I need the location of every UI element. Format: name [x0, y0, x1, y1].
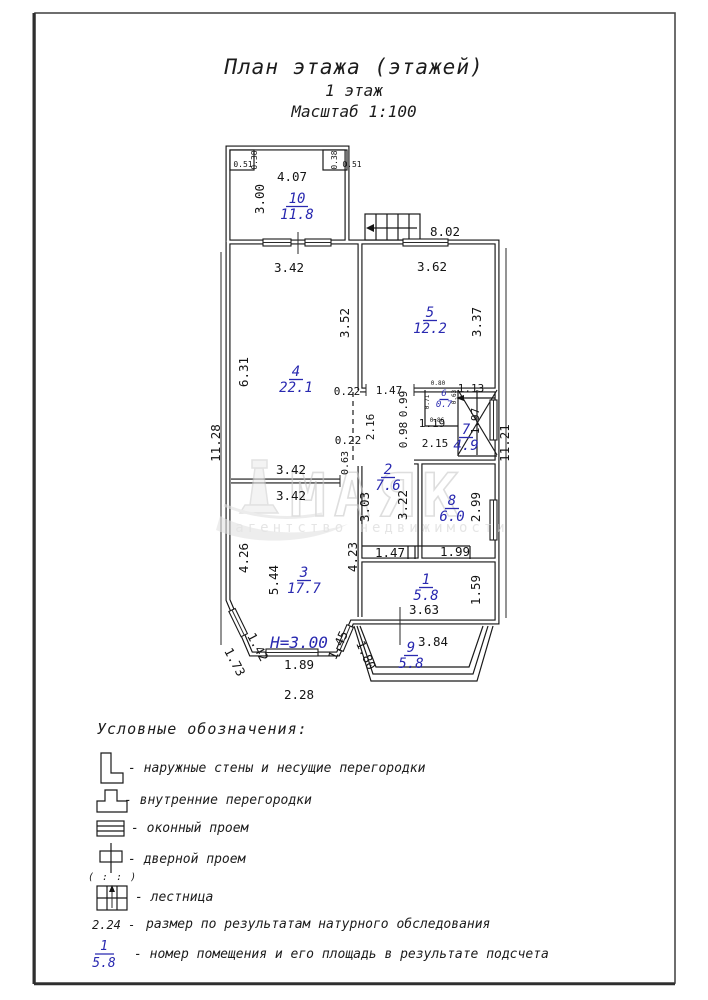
- dim-label: 4.07: [277, 169, 307, 184]
- room-area: 22.1: [279, 380, 313, 396]
- room-number: 7: [462, 422, 471, 438]
- floor-plan-drawing: План этажа (этажей) 1 этаж Масштаб 1:100: [0, 0, 708, 1000]
- room-number: 10: [289, 191, 306, 207]
- dim-label: 0.86: [430, 417, 445, 424]
- legend-item-label: - наружные стены и несущие перегородки: [128, 761, 426, 776]
- room-area: 11.8: [280, 207, 314, 223]
- dim-label: 3.52: [337, 308, 352, 338]
- dim-label: 1.97: [469, 408, 482, 435]
- legend-item-label: - лестница: [135, 890, 213, 905]
- size-key-label: размер по результатам натурного обследов…: [145, 917, 490, 932]
- dim-label: 0.38: [330, 150, 339, 169]
- dim-label: 1.47: [375, 545, 405, 560]
- legend-heading: Условные обозначения:: [97, 720, 308, 738]
- dim-label: 2.99: [468, 492, 483, 522]
- legend-item-label: - внутренние перегородки: [124, 793, 312, 808]
- room-area: 6.0: [439, 509, 464, 525]
- dim-label: 3.42: [274, 260, 304, 275]
- dim-label: 5.44: [266, 565, 281, 595]
- room-area: 4.9: [453, 438, 478, 454]
- room-number: 1: [422, 572, 430, 588]
- dim-label: 1.59: [468, 575, 483, 605]
- room-area: 0.7: [436, 400, 453, 410]
- room-number: 9: [407, 640, 415, 656]
- dim-label: 1.89: [284, 657, 314, 672]
- room-number: 3: [299, 565, 308, 581]
- window-legend-symbol: [97, 821, 124, 836]
- page-title: План этажа (этажей): [223, 55, 483, 79]
- dim-label: 4.23: [345, 542, 360, 572]
- dim-label: 2.28: [284, 687, 314, 702]
- room-number: 8: [448, 493, 456, 509]
- dim-label: 4.26: [236, 543, 251, 573]
- stairs-legend-symbol: [97, 885, 127, 910]
- outer-wall-symbol: [101, 753, 123, 783]
- window-symbol: [263, 239, 291, 246]
- room-area: 17.7: [287, 581, 321, 597]
- dim-label: 1.73: [221, 645, 248, 679]
- room-area: 5.8: [413, 588, 438, 604]
- room-number: 4: [292, 364, 300, 380]
- legend-item-label: - оконный проем: [131, 821, 250, 836]
- dim-label: 3.62: [417, 259, 447, 274]
- dim-label: 1.13: [458, 382, 485, 395]
- dim-label: 6.31: [236, 357, 251, 387]
- dim-label: 2.15: [422, 437, 449, 450]
- room-number-key-label: - номер помещения и его площадь в резуль…: [134, 947, 549, 962]
- dim-label: 11.21: [497, 424, 512, 462]
- dim-label: 1.99: [440, 544, 470, 559]
- scanned-floor-plan-page: План этажа (этажей) 1 этаж Масштаб 1:100: [0, 0, 708, 1000]
- room-number-key: 1 5.8: [92, 939, 116, 971]
- dim-label: 8.02: [430, 224, 460, 239]
- dim-label: 3.00: [252, 184, 267, 214]
- room-area: 12.2: [413, 321, 447, 337]
- dim-label: 3.03: [357, 492, 372, 522]
- dim-label: 2.16: [364, 414, 377, 441]
- dim-label: 0.22: [334, 385, 361, 398]
- window-symbol: [229, 608, 248, 636]
- ceiling-height-label: H=3.00: [269, 633, 328, 652]
- dim-label: 3.22: [395, 490, 410, 520]
- dim-label: 0.99: [397, 391, 410, 418]
- dim-label: 0.22: [335, 434, 362, 447]
- room-area: 7.6: [375, 478, 400, 494]
- legend-item-label: - дверной проем: [128, 852, 247, 867]
- room-number: 2: [384, 462, 392, 478]
- inner-wall-symbol: [97, 790, 127, 812]
- size-key: 2.24 -: [92, 918, 135, 932]
- dim-label: 0.38: [250, 150, 259, 169]
- door-legend-symbol: [100, 843, 122, 873]
- dim-label: 11.28: [208, 424, 223, 462]
- dim-label: 1.80: [353, 638, 379, 672]
- dim-label: 3.42: [276, 488, 306, 503]
- floor-subtitle: 1 этаж: [325, 81, 383, 100]
- window-symbol: [490, 400, 497, 440]
- title-block: План этажа (этажей) 1 этаж Масштаб 1:100: [223, 55, 483, 121]
- dim-label: 3.42: [276, 462, 306, 477]
- legend: Условные обозначения: - наружные стены и…: [88, 720, 549, 971]
- room-labels: 1011.8512.2422.160.774.927.686.0317.715.…: [279, 191, 479, 672]
- dim-label: 0.63: [340, 451, 351, 475]
- dim-label: 0.51: [342, 160, 361, 169]
- scale-label: Масштаб 1:100: [290, 102, 416, 121]
- door-threshold-dashes: ( : : ): [88, 872, 137, 883]
- dim-label: 0.98: [397, 422, 410, 449]
- svg-text:5.8: 5.8: [92, 956, 116, 971]
- room-number: 5: [426, 305, 434, 321]
- exterior-stair-symbol: [365, 214, 420, 240]
- dim-label: 3.63: [409, 602, 439, 617]
- dim-label: 3.37: [469, 307, 484, 337]
- room-number: 6: [441, 389, 446, 399]
- window-symbol: [403, 239, 448, 246]
- dim-label: 3.84: [418, 634, 448, 649]
- room-area: 5.8: [398, 656, 423, 672]
- dim-label: 0.80: [431, 380, 446, 387]
- dim-label: 0.71: [424, 394, 431, 409]
- dim-label: 1.45: [325, 628, 351, 662]
- window-symbol: [305, 239, 331, 246]
- svg-text:1: 1: [100, 939, 108, 954]
